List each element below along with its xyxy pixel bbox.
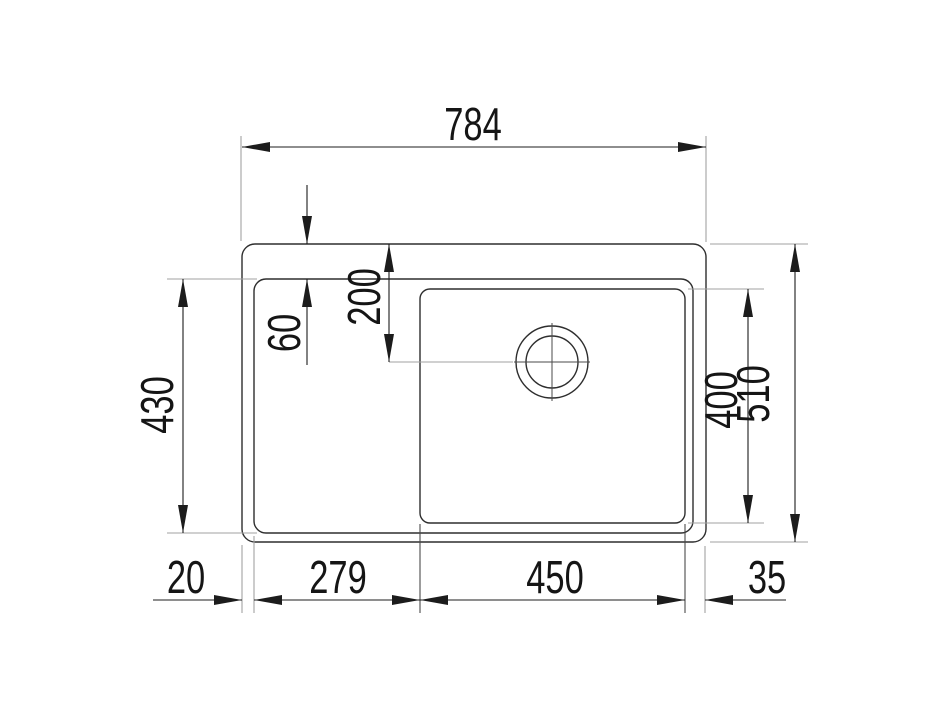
dim-label-rim-inset-top: 60 xyxy=(258,314,310,352)
dim-label-drain-center-from-top: 200 xyxy=(338,268,390,326)
dim-label-inner-rim-depth: 430 xyxy=(131,376,183,434)
dim-label-overall-width: 784 xyxy=(444,98,502,150)
sink-inner-rim-outline xyxy=(254,279,693,533)
dim-label-left-edge-offset: 20 xyxy=(167,551,205,603)
sink-dimension-drawing: 784 20 279 450 35 430 60 200 400 510 xyxy=(0,0,952,724)
dim-label-ledge-width: 279 xyxy=(309,551,367,603)
technical-drawing-canvas: 784 20 279 450 35 430 60 200 400 510 xyxy=(0,0,952,724)
dim-label-bowl-width: 450 xyxy=(526,551,584,603)
dim-label-overall-depth: 510 xyxy=(727,365,779,423)
dim-label-right-edge-offset: 35 xyxy=(748,551,786,603)
